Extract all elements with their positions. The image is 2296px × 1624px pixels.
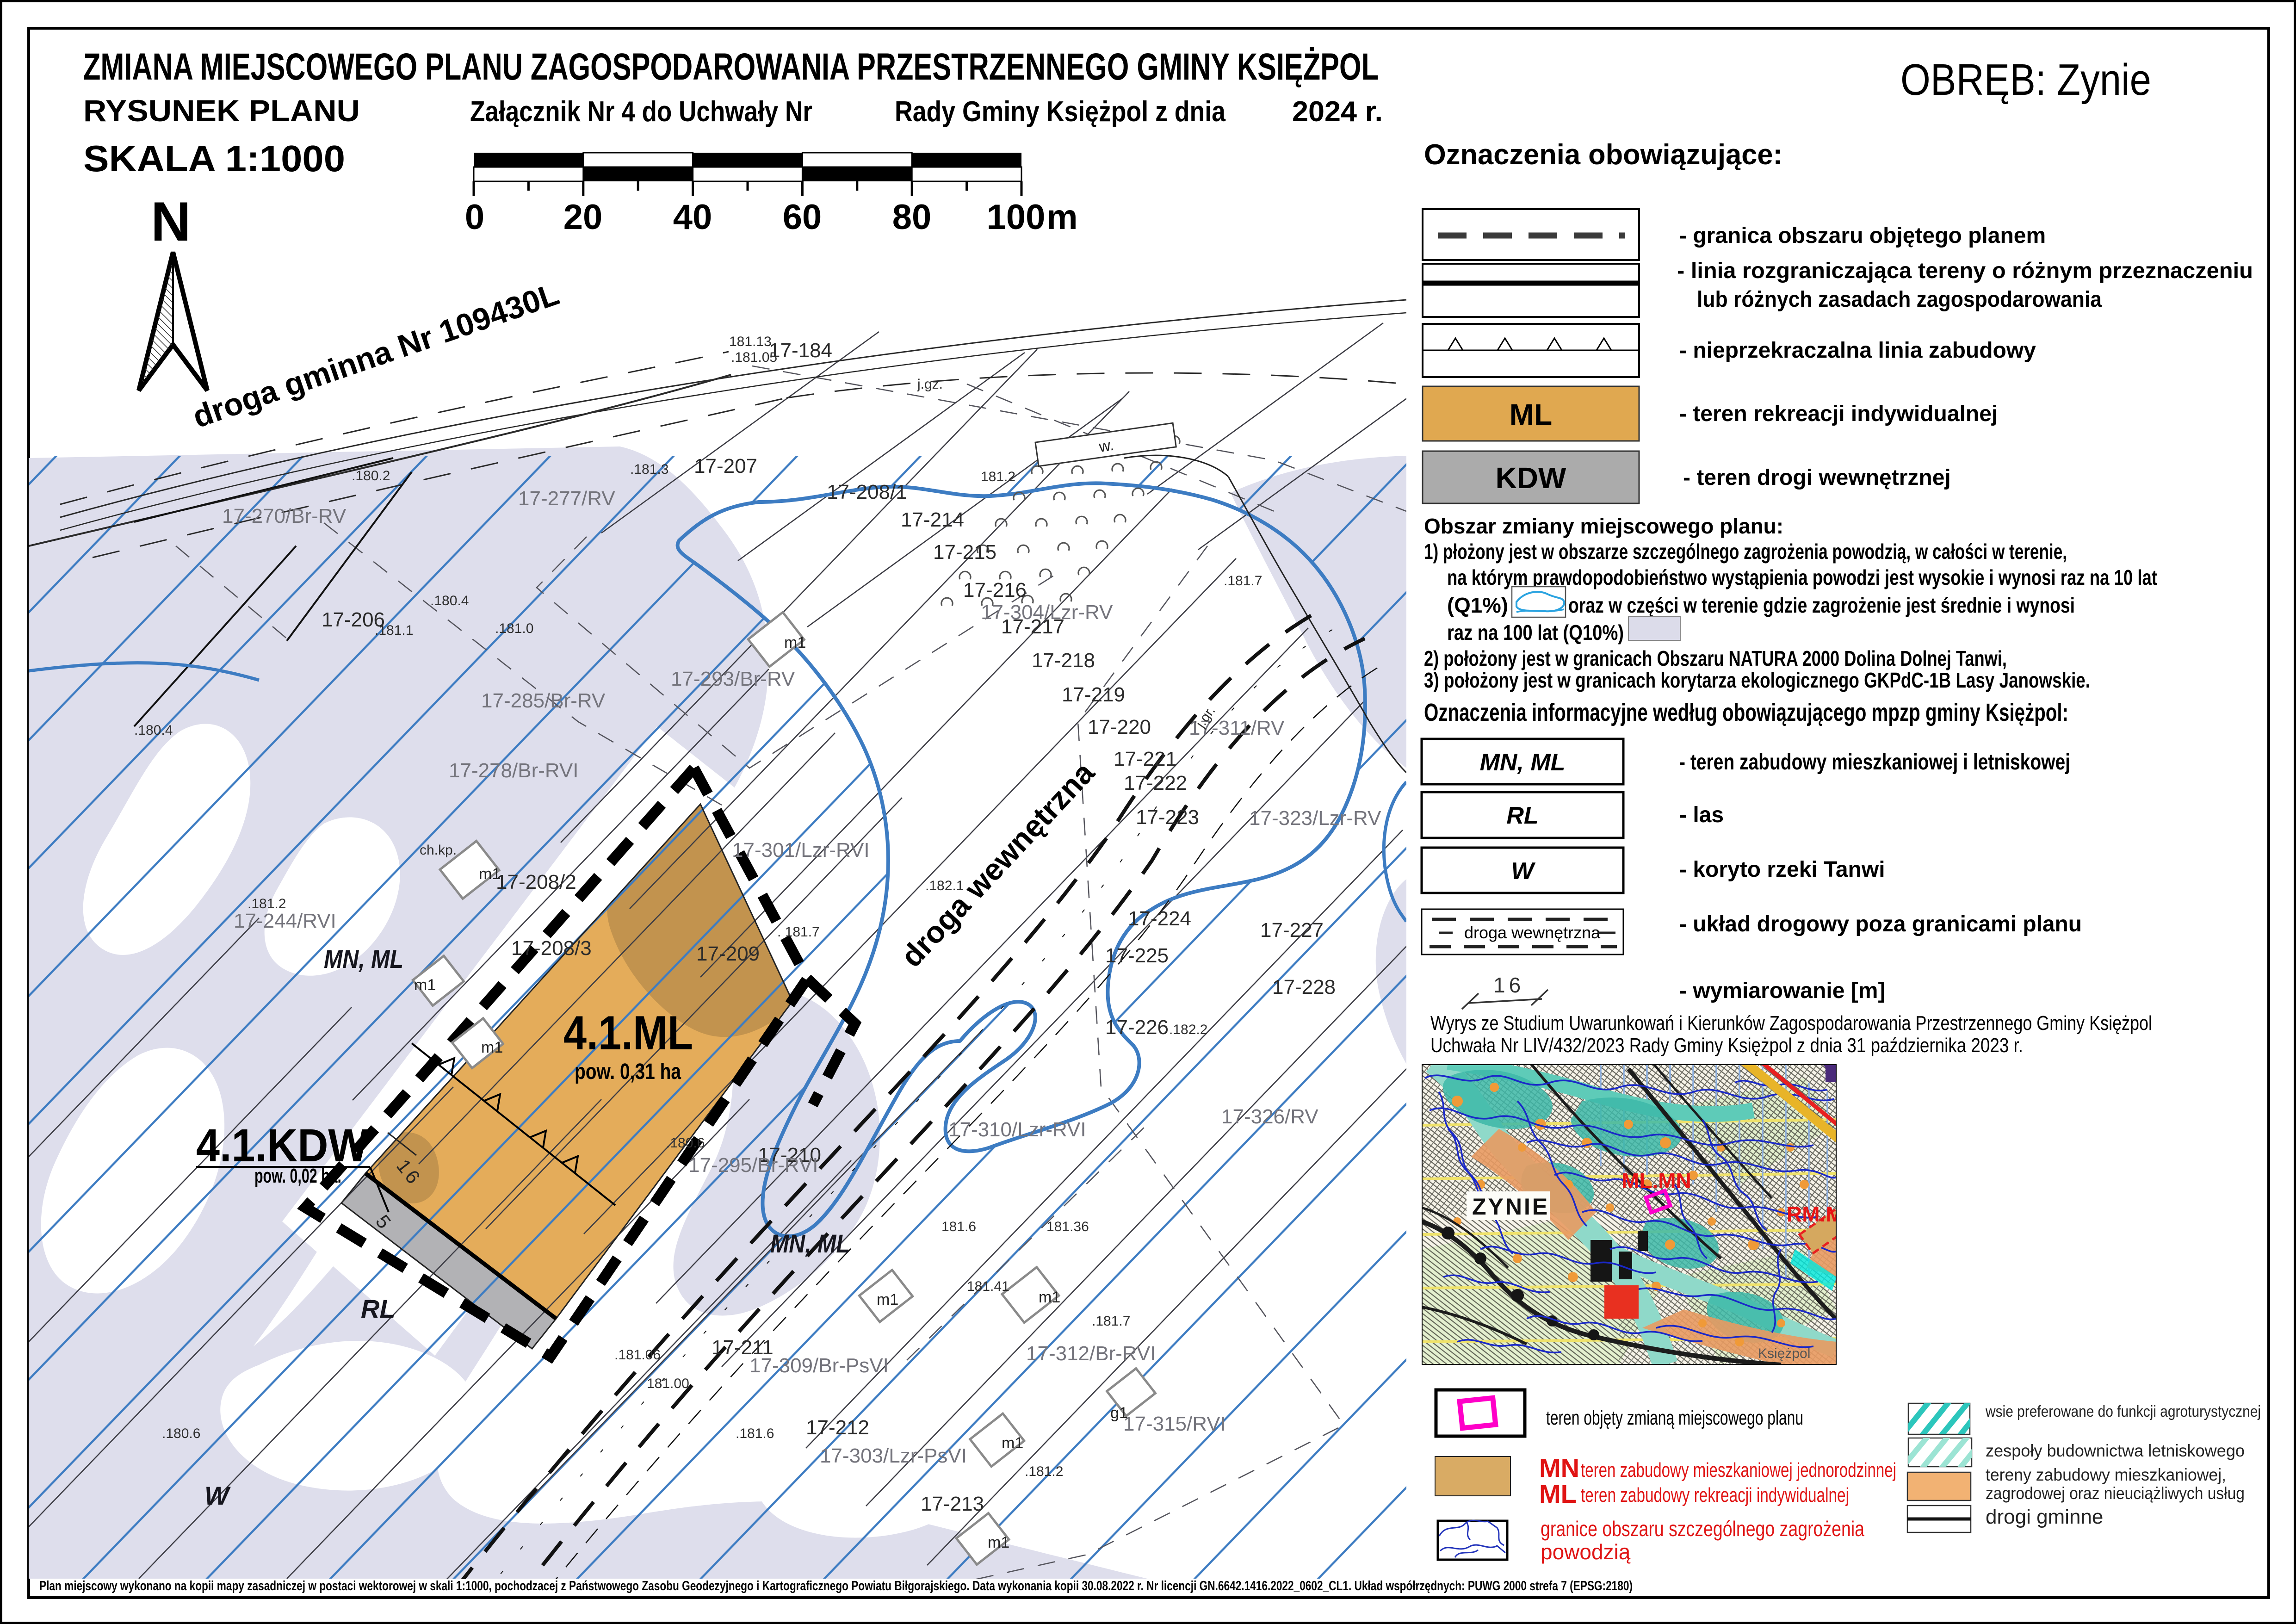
svg-text:.181.2: .181.2 — [248, 896, 286, 911]
svg-text:pow. 0,02 ha.: pow. 0,02 ha. — [254, 1165, 341, 1187]
svg-text:181.6: 181.6 — [941, 1219, 976, 1234]
svg-text:17-208/3: 17-208/3 — [511, 937, 592, 960]
svg-text:drogi gminne: drogi gminne — [1986, 1506, 2103, 1528]
svg-text:20: 20 — [563, 198, 603, 237]
svg-text:Oznaczenia obowiązujące:: Oznaczenia obowiązujące: — [1424, 139, 1782, 171]
svg-text:teren zabudowy rekreacji indyw: teren zabudowy rekreacji indywidualnej — [1581, 1484, 1849, 1506]
svg-text:OBRĘB: Zynie: OBRĘB: Zynie — [1900, 55, 2151, 105]
svg-text:N: N — [151, 191, 191, 253]
svg-text:KDW: KDW — [1496, 461, 1566, 495]
svg-text:- koryto rzeki Tanwi: - koryto rzeki Tanwi — [1679, 857, 1885, 882]
svg-text:17-285/Br-RV: 17-285/Br-RV — [481, 689, 606, 712]
svg-text:Księżpol: Księżpol — [1758, 1346, 1810, 1361]
svg-text:- teren zabudowy mieszkaniowe: - teren zabudowy mieszkaniowej i letnisk… — [1679, 750, 2070, 775]
svg-text:ML.MN: ML.MN — [1621, 1169, 1691, 1193]
svg-text:17-208/1: 17-208/1 — [827, 481, 907, 503]
svg-text:RL: RL — [1506, 802, 1538, 829]
svg-text:17-227: 17-227 — [1260, 919, 1324, 942]
svg-text:- układ drogowy poza granicam: - układ drogowy poza granicami planu — [1679, 912, 2082, 936]
svg-text:powodzią: powodzią — [1541, 1540, 1631, 1564]
svg-text:4.1.ML: 4.1.ML — [563, 1006, 693, 1060]
svg-text:m1: m1 — [784, 634, 806, 651]
svg-text:.180.2: .180.2 — [352, 468, 390, 483]
svg-text:40: 40 — [673, 198, 712, 237]
svg-text:17-214: 17-214 — [901, 508, 964, 531]
svg-text:0: 0 — [465, 198, 484, 237]
svg-text:17-215: 17-215 — [933, 541, 996, 564]
svg-text:17-301/Lzr-RVI: 17-301/Lzr-RVI — [732, 839, 870, 862]
svg-text:181.2: 181.2 — [981, 469, 1015, 484]
svg-text:.180.6: .180.6 — [162, 1426, 200, 1441]
svg-text:na którym prawdopodobieństwo w: na którym prawdopodobieństwo wystąpienia… — [1447, 565, 2157, 589]
svg-text:pow. 0,31 ha: pow. 0,31 ha — [575, 1060, 681, 1084]
svg-text:zespoły budownictwa letniskowe: zespoły budownictwa letniskowego — [1986, 1441, 2245, 1460]
svg-text:17-213: 17-213 — [921, 1493, 984, 1515]
svg-text:17-219: 17-219 — [1062, 683, 1125, 706]
svg-text:ZMIANA MIEJSCOWEGO PLANU ZAGOS: ZMIANA MIEJSCOWEGO PLANU ZAGOSPODAROWANI… — [83, 46, 1379, 88]
svg-text:17-315/RVI: 17-315/RVI — [1123, 1413, 1226, 1435]
svg-text:100: 100 — [987, 198, 1046, 237]
svg-text:1) płożony jest w obszarze szc: 1) płożony jest w obszarze szczególnego … — [1424, 539, 2067, 564]
svg-text:droga wewnętrzna: droga wewnętrzna — [1464, 923, 1601, 942]
svg-text:17-222: 17-222 — [1124, 772, 1187, 794]
svg-text:17-270/Br-RV: 17-270/Br-RV — [222, 505, 347, 527]
svg-text:teren objęty zmianą miejscoweg: teren objęty zmianą miejscowego planu — [1546, 1407, 1803, 1429]
svg-text:m1: m1 — [877, 1291, 898, 1308]
svg-text:- las: - las — [1679, 803, 1724, 827]
svg-text:Załącznik Nr 4 do Uchwały Nr: Załącznik Nr 4 do Uchwały Nr — [470, 96, 812, 128]
svg-text:.181.0: .181.0 — [495, 621, 533, 636]
svg-text:ch.kp.: ch.kp. — [420, 843, 457, 858]
svg-text:2) położony jest w granicach O: 2) położony jest w granicach Obszaru NAT… — [1424, 646, 2007, 670]
svg-text:- nieprzekraczalna linia zabu: - nieprzekraczalna linia zabudowy — [1679, 338, 2036, 363]
svg-text:17-224: 17-224 — [1128, 907, 1191, 930]
svg-text:RL: RL — [361, 1294, 396, 1323]
svg-text:raz na 100 lat (Q10%): raz na 100 lat (Q10%) — [1447, 620, 1624, 645]
svg-text:Rady Gminy Księżpol z dnia: Rady Gminy Księżpol z dnia — [895, 96, 1225, 128]
svg-text:17-220: 17-220 — [1088, 716, 1151, 738]
svg-text:Wyrys ze Studium Uwarunkowań i: Wyrys ze Studium Uwarunkowań i Kierunków… — [1430, 1012, 2152, 1035]
svg-text:17-226: 17-226 — [1105, 1016, 1169, 1039]
svg-text:3) położony jest w granicach k: 3) położony jest w granicach korytarza e… — [1424, 668, 2090, 692]
svg-text:80: 80 — [892, 198, 932, 237]
svg-text:17-326/RV: 17-326/RV — [1221, 1105, 1318, 1128]
svg-text:2024 r.: 2024 r. — [1292, 96, 1383, 128]
svg-text:17-225: 17-225 — [1105, 944, 1169, 967]
svg-text:.180.4: .180.4 — [134, 723, 173, 738]
svg-text:.181.06: .181.06 — [614, 1347, 661, 1363]
svg-text:.181.1: .181.1 — [375, 623, 413, 638]
svg-text:17-208/2: 17-208/2 — [496, 871, 576, 893]
svg-text:17-309/Br-PsVI: 17-309/Br-PsVI — [749, 1354, 889, 1377]
svg-text:m1: m1 — [1002, 1434, 1023, 1452]
svg-text:17-218: 17-218 — [1032, 649, 1095, 672]
svg-text:17-223: 17-223 — [1136, 806, 1199, 829]
svg-text:181.00: 181.00 — [647, 1376, 689, 1391]
svg-text:17-278/Br-RVI: 17-278/Br-RVI — [449, 759, 578, 782]
svg-text:.181.7: .181.7 — [1092, 1314, 1130, 1329]
svg-text:.181.6: .181.6 — [736, 1426, 774, 1441]
svg-text:MN, ML: MN, ML — [1480, 749, 1566, 776]
svg-text:17-207: 17-207 — [694, 455, 757, 477]
svg-text:granice obszaru szczególnego z: granice obszaru szczególnego zagrożenia — [1541, 1517, 1864, 1541]
svg-text:181.13: 181.13 — [729, 334, 772, 349]
svg-text:.181.3: .181.3 — [630, 462, 668, 477]
svg-text:17-184: 17-184 — [769, 339, 832, 362]
svg-text:17-310/Lzr-RVI: 17-310/Lzr-RVI — [948, 1118, 1086, 1141]
svg-text:17-221: 17-221 — [1114, 748, 1177, 770]
svg-text:17-293/Br-RV: 17-293/Br-RV — [671, 668, 795, 690]
svg-text:m1: m1 — [481, 1039, 503, 1056]
svg-text:60: 60 — [783, 198, 822, 237]
svg-text:- teren rekreacji indywidualn: - teren rekreacji indywidualnej — [1679, 402, 1998, 426]
svg-text:Oznaczenia informacyjne wedłu: Oznaczenia informacyjne według obowiązuj… — [1424, 699, 2068, 726]
svg-text:.181.2: .181.2 — [1025, 1464, 1063, 1479]
svg-text:MN, ML: MN, ML — [770, 1229, 850, 1258]
svg-text:tereny zabudowy mieszkaniowej,: tereny zabudowy mieszkaniowej, — [1986, 1465, 2226, 1484]
svg-text:(Q1%): (Q1%) — [1447, 593, 1508, 617]
svg-text:MN: MN — [1539, 1453, 1579, 1482]
svg-text:17-209: 17-209 — [696, 942, 760, 965]
svg-text:.182.2: .182.2 — [1169, 1022, 1207, 1037]
svg-text:- linia rozgraniczająca teren: - linia rozgraniczająca tereny o różnym … — [1677, 259, 2253, 283]
svg-text:m1: m1 — [1039, 1289, 1060, 1306]
svg-text:181.41: 181.41 — [967, 1279, 1009, 1294]
svg-text:.181.05: .181.05 — [731, 350, 777, 365]
svg-text:MN, ML: MN, ML — [324, 944, 403, 973]
svg-text:17-295/Br-RVI: 17-295/Br-RVI — [688, 1154, 818, 1177]
svg-text:ZYNIE: ZYNIE — [1472, 1194, 1549, 1220]
svg-text:wsie preferowane do funkcji ag: wsie preferowane do funkcji agroturystyc… — [1985, 1403, 2261, 1420]
svg-text:W: W — [204, 1481, 231, 1510]
svg-text:ML: ML — [1539, 1479, 1577, 1508]
svg-text:W: W — [1511, 858, 1535, 885]
svg-text:w.: w. — [1097, 436, 1115, 456]
svg-text:Obszar zmiany miejscowego plan: Obszar zmiany miejscowego planu: — [1424, 514, 1783, 538]
svg-text:oraz w części w terenie gdzie: oraz w części w terenie gdzie zagrożenie… — [1568, 593, 2075, 617]
svg-text:4.1.KDW: 4.1.KDW — [196, 1120, 369, 1172]
svg-text:Plan miejscowy wykonano na kop: Plan miejscowy wykonano na kopii mapy za… — [39, 1579, 1633, 1593]
svg-text:. 181.7: . 181.7 — [777, 924, 820, 940]
svg-text:.180.6: .180.6 — [666, 1135, 705, 1151]
svg-text:teren zabudowy mieszkaniowej j: teren zabudowy mieszkaniowej jednorodzin… — [1581, 1459, 1896, 1481]
svg-text:181.36: 181.36 — [1046, 1219, 1089, 1234]
svg-text:m1: m1 — [988, 1534, 1009, 1551]
svg-text:.181.7: .181.7 — [1224, 573, 1262, 589]
svg-text:m: m — [1046, 198, 1078, 237]
svg-text:17-244/RVI: 17-244/RVI — [234, 910, 336, 932]
svg-text:m1: m1 — [414, 976, 436, 994]
svg-text:17-228: 17-228 — [1272, 976, 1336, 998]
svg-text:- wymiarowanie [m]: - wymiarowanie [m] — [1679, 979, 1885, 1003]
svg-text:RYSUNEK PLANU: RYSUNEK PLANU — [83, 93, 360, 128]
svg-text:- teren drogi wewnętrznej: - teren drogi wewnętrznej — [1683, 465, 1951, 490]
svg-text:17-312/Br-RVI: 17-312/Br-RVI — [1026, 1342, 1156, 1365]
svg-text:.180.4: .180.4 — [430, 593, 469, 608]
svg-text:Uchwała Nr LIV/432/2023 Rady G: Uchwała Nr LIV/432/2023 Rady Gminy Księż… — [1430, 1034, 2023, 1057]
svg-text:lub różnych zasadach zagospoda: lub różnych zasadach zagospodarowania — [1697, 287, 2102, 312]
svg-text:SKALA 1:1000: SKALA 1:1000 — [83, 138, 345, 179]
svg-text:zagrodowej oraz nieuciążliwych: zagrodowej oraz nieuciążliwych usług — [1986, 1484, 2245, 1503]
svg-text:17-303/Lzr-PsVI: 17-303/Lzr-PsVI — [820, 1444, 967, 1467]
svg-text:17-304/Lzr-RV: 17-304/Lzr-RV — [981, 601, 1113, 624]
svg-text:.182.1: .182.1 — [925, 878, 964, 893]
svg-text:17-323/Lzr-RV: 17-323/Lzr-RV — [1249, 807, 1381, 830]
svg-text:17-212: 17-212 — [806, 1416, 869, 1439]
svg-text:j.gz.: j.gz. — [917, 377, 943, 392]
svg-text:17-216: 17-216 — [963, 579, 1027, 601]
svg-text:17-277/RV: 17-277/RV — [518, 487, 615, 510]
svg-text:- granica obszaru objętego pl: - granica obszaru objętego planem — [1679, 223, 2046, 248]
svg-text:16: 16 — [1493, 973, 1524, 997]
svg-text:ML: ML — [1510, 398, 1552, 431]
